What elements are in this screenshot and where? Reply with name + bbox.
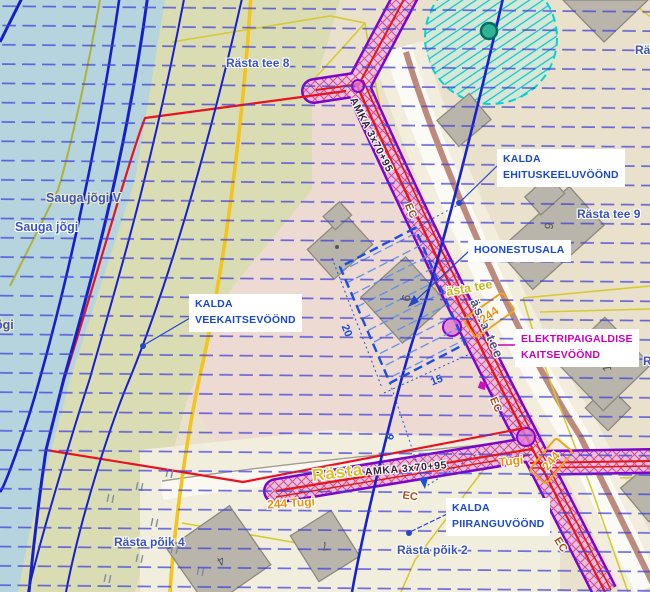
callout-hoonestusala[interactable]: HOONESTUSALA [468, 240, 571, 262]
river-label-sauga-jogi: Sauga jõgi [15, 221, 78, 234]
pole-label-244-tugi: 244 Tugi [267, 495, 316, 510]
piiranguvoond-hatch [0, 0, 650, 592]
callout-elektripaigaldise-kaitsevoond[interactable]: ELEKTRIPAIGALDISE KAITSEVÖÖND [515, 329, 639, 367]
powerline-label-ec-3: EC [402, 490, 419, 503]
pole-label-tugi: Tugi [498, 454, 524, 468]
callout-kalda-ehituskeeluvoond[interactable]: KALDA EHITUSKEELUVÖÖND [497, 149, 625, 187]
callout-kalda-piiranguvoond[interactable]: KALDA PIIRANGUVÖÖND [446, 498, 550, 536]
callout-line: PIIRANGUVÖÖND [452, 517, 544, 533]
street-label-rasta-poik-4: Rästa põik 4 [114, 536, 185, 548]
callout-line: KALDA [503, 152, 619, 168]
callout-line: KALDA [452, 501, 544, 517]
river-label-ogi-cut: õgi [0, 319, 14, 332]
street-label-rasta-tee-8: Rästa tee 8 [226, 57, 289, 69]
callout-line: EHITUSKEELUVÖÖND [503, 168, 619, 184]
callout-line: KAITSEVÖÖND [521, 348, 633, 364]
map-drawing [0, 0, 650, 592]
callout-kalda-veekaitsevoond[interactable]: KALDA VEEKAITSEVÖÖND [189, 294, 302, 332]
map-canvas[interactable]: Rästa tee 8 Rästa tee 9 Rä R e 6 Rästa p… [0, 0, 650, 592]
street-label-rasta-tee-9: Rästa tee 9 [577, 208, 640, 220]
house-number-9b: 9 [400, 294, 413, 303]
river-label-sauga-jogi-v: Sauga jõgi V [46, 192, 121, 205]
callout-line: VEEKAITSEVÖÖND [195, 313, 296, 329]
street-label-ra-cut: Rä [635, 44, 650, 56]
street-label-rasta-poik-2: Rästa põik 2 [397, 544, 468, 556]
callout-line: HOONESTUSALA [474, 243, 565, 259]
street-label-r-cut: R [643, 355, 650, 367]
callout-line: KALDA [195, 297, 296, 313]
well-symbol [481, 23, 497, 39]
callout-line: ELEKTRIPAIGALDISE [521, 332, 633, 348]
